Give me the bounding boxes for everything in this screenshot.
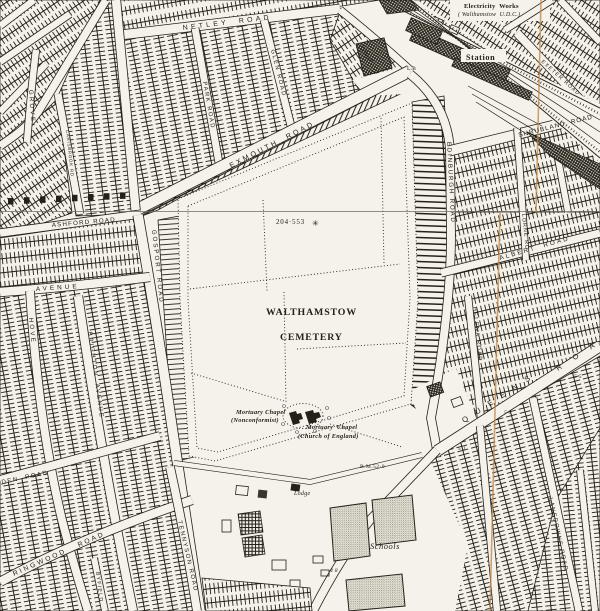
svg-text:Mortuary Chapel: Mortuary Chapel [235,409,285,416]
svg-text:Station: Station [466,53,495,62]
svg-text:CEMETERY: CEMETERY [280,332,343,343]
svg-text:✳: ✳ [312,219,319,228]
svg-text:51: 51 [458,446,468,452]
svg-text:(Nonconformist): (Nonconformist) [231,417,279,424]
svg-text:(Church of England): (Church of England) [298,433,359,440]
svg-text:55: 55 [574,374,584,380]
svg-text:( Walthamstow U.D.C.): ( Walthamstow U.D.C.) [458,11,520,18]
svg-text:WALTHAMSTOW: WALTHAMSTOW [266,307,357,318]
svg-text:Lodge: Lodge [293,491,311,497]
svg-text:48: 48 [330,568,340,574]
svg-text:Schools: Schools [370,541,400,551]
svg-text:L.B: L.B [407,66,416,72]
svg-text:55: 55 [504,410,514,416]
svg-text:Mortuary Chapel: Mortuary Chapel [305,424,357,431]
svg-text:Electricity Works: Electricity Works [464,3,519,10]
svg-text:204·553: 204·553 [276,218,305,226]
svg-text:B.M.52·0: B.M.52·0 [360,464,385,470]
